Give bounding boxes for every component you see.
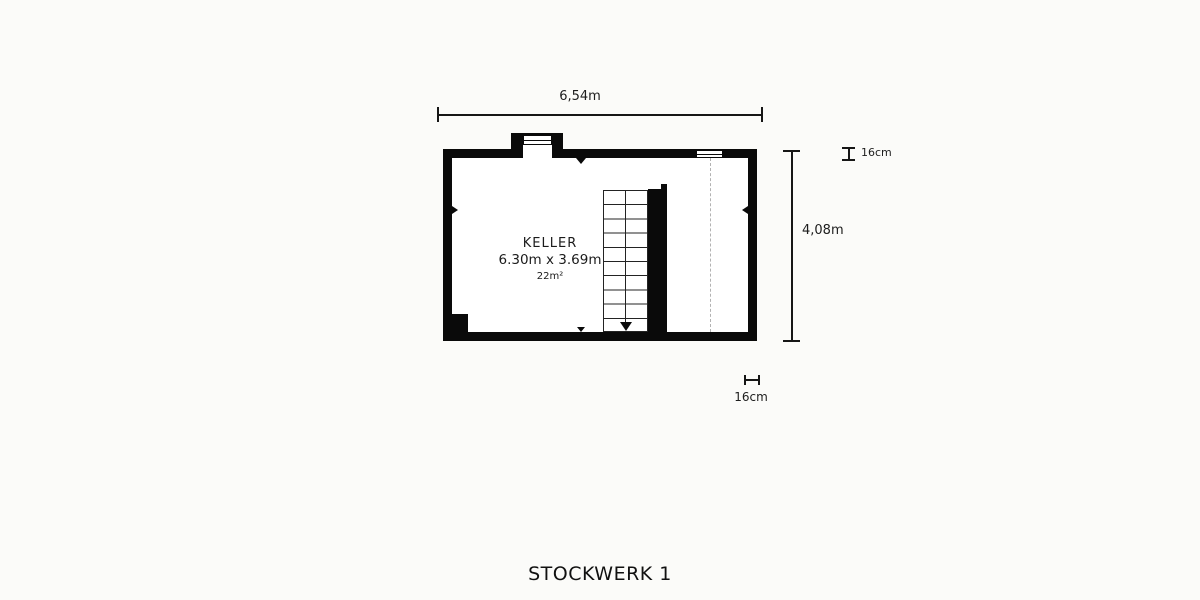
wall-thickness-top-cap-b: [842, 159, 855, 161]
wall-thickness-bottom-label: 16cm: [721, 390, 781, 404]
overall-height-label: 4,08m: [802, 223, 844, 238]
bottom-wall-tick-icon: [577, 327, 585, 332]
stair-side-wall-notch: [661, 184, 667, 191]
stairs-direction-arrow-icon: [620, 322, 632, 331]
wall-thickness-bottom-cap-a: [744, 375, 746, 385]
overall-width-label: 6,54m: [438, 89, 722, 104]
right-wall-tick-icon: [742, 206, 748, 214]
dashed-reference-line: [710, 158, 711, 332]
top-dimension-line: [438, 114, 762, 116]
wall-thickness-top-label: 16cm: [861, 146, 892, 159]
stair-side-wall: [648, 189, 667, 332]
room-size-label: 6.30m x 3.69m: [450, 252, 650, 268]
page-title: STOCKWERK 1: [0, 563, 1200, 585]
room-area-label: 22m²: [450, 271, 650, 282]
top-dimension-cap-right: [761, 107, 763, 122]
room-label: KELLER 6.30m x 3.69m 22m²: [450, 236, 650, 282]
left-wall-tick-icon: [452, 206, 458, 214]
room-name: KELLER: [450, 236, 650, 251]
pillar-block: [452, 314, 468, 332]
wall-thickness-bottom-cap-b: [758, 375, 760, 385]
floor-plan-canvas: 6,54m KELLER 6.30m x 3.69m 22m² 4,08m 16…: [0, 0, 1200, 600]
top-wall-tick-icon: [576, 158, 586, 164]
top-dimension-cap-left: [437, 107, 439, 122]
bay-window-opening: [523, 145, 552, 158]
wall-thickness-top-cap-a: [842, 147, 855, 149]
top-right-window-icon: [696, 150, 723, 158]
right-dimension-cap-top: [783, 150, 800, 152]
bay-window-icon: [523, 135, 552, 145]
right-dimension-line: [791, 151, 793, 341]
right-dimension-cap-bottom: [783, 340, 800, 342]
